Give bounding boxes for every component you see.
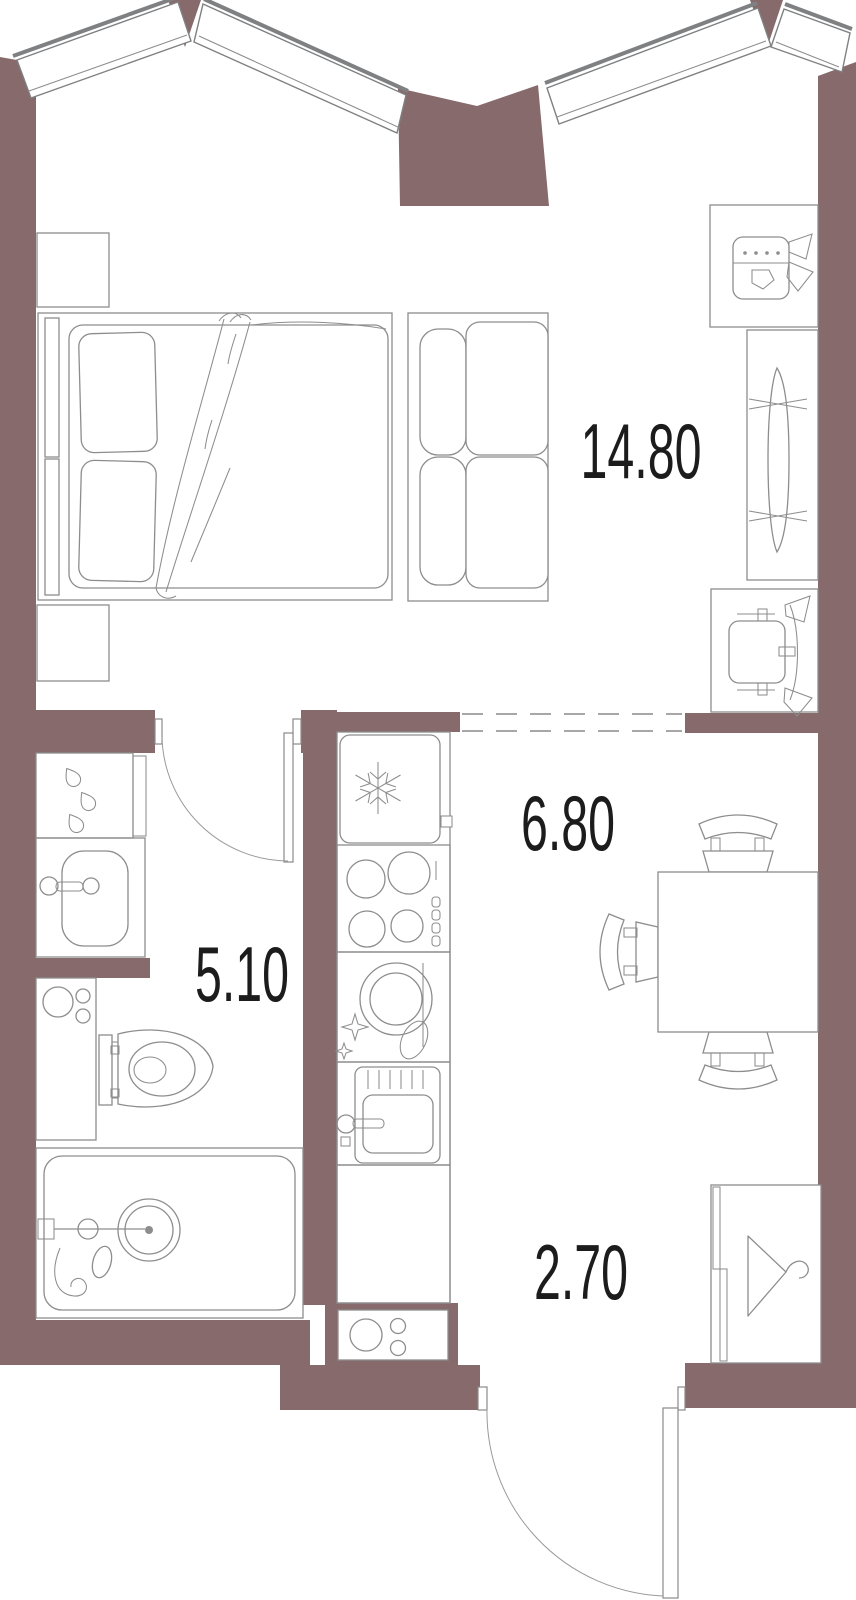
chair-back [699, 815, 777, 839]
nightstand [37, 233, 109, 307]
fridge-snowflake-icon [340, 735, 452, 843]
window-band [194, 4, 406, 133]
toilet-icon [99, 1030, 213, 1107]
double-bed-icon [38, 313, 392, 600]
chair-post [755, 838, 764, 851]
window-band [547, 8, 771, 124]
basin-faucet-spout [56, 882, 83, 891]
stove-knob [432, 936, 440, 946]
basin-drain [83, 878, 99, 894]
dishwasher [337, 952, 450, 1062]
burner [391, 910, 423, 942]
chair-icon [600, 914, 658, 990]
bathroom-top-wall-right [301, 710, 337, 753]
sink-stub-wall [36, 958, 150, 978]
door-swing-icon [487, 1409, 663, 1596]
chair-seat [636, 922, 658, 982]
kitchen-area-label: 6.80 [521, 779, 615, 867]
bathtub-outer [36, 1148, 303, 1318]
entry-bottom-wall [280, 1365, 480, 1410]
desk-with-chair [710, 205, 818, 327]
window-band [17, 2, 191, 98]
desk [710, 205, 818, 327]
sofa-back-cushion [420, 329, 466, 455]
bathroom-door [155, 719, 301, 862]
chair-icon [699, 1032, 777, 1089]
living-room-area-label: 14.80 [581, 407, 702, 495]
water-drop-icon [61, 765, 83, 789]
dining-table-icon [658, 872, 818, 1032]
bathroom-fixtures [36, 753, 303, 1318]
living-stub-wall [685, 713, 818, 733]
door-jamb [678, 1387, 685, 1410]
chair-dot [765, 251, 769, 255]
chair-post [711, 838, 720, 851]
plate-inner [370, 973, 422, 1025]
wardrobe-hanger-icon [711, 1185, 821, 1363]
chair-dot [754, 251, 758, 255]
sofa-icon [408, 313, 548, 601]
chair-seat [703, 1032, 773, 1053]
toilet-bowl-detail [134, 1057, 166, 1083]
dashed-opening [462, 714, 682, 731]
faucet-spout [353, 1119, 384, 1128]
tv-console [747, 330, 818, 580]
sink-drainer [368, 1070, 423, 1089]
bathroom-area-label: 5.10 [195, 930, 289, 1018]
washer-knob [76, 1009, 90, 1023]
water-drop-icon [64, 811, 86, 835]
washer-knob [76, 989, 90, 1003]
chair-post [624, 928, 637, 937]
tv-stand-icon [747, 330, 818, 580]
headboard-slat [45, 459, 59, 595]
window-band [771, 9, 850, 72]
utility-panel [338, 1310, 448, 1360]
washer-drum [43, 987, 73, 1017]
stove-burners-icon [337, 845, 450, 952]
fridge [340, 735, 440, 843]
burner [388, 852, 430, 894]
door-jamb [478, 1387, 487, 1410]
washing-machine-icon [36, 978, 96, 1140]
fridge-hinge [441, 816, 452, 827]
stove-knob [432, 897, 440, 907]
washbasin-icon [36, 838, 145, 957]
right-wall [818, 62, 856, 1408]
chair-seat [703, 851, 773, 872]
sofa-seat-cushion [466, 457, 548, 588]
stove-knob [432, 910, 440, 920]
door-jamb [293, 719, 301, 744]
washbasin-bowl [62, 851, 128, 946]
shower-hose [55, 1248, 87, 1296]
door-jamb [155, 719, 162, 744]
bottom-left-wall [0, 1320, 310, 1365]
water-drop-icon [76, 789, 98, 813]
stove-knob [432, 923, 440, 933]
bath-kitchen-wall [303, 753, 337, 1305]
towel-dryer-drops-icon [36, 753, 146, 838]
bathroom-top-wall [0, 710, 155, 753]
sofa-seat-cushion [466, 322, 548, 455]
half-plate [395, 1017, 434, 1063]
chair-post [624, 966, 637, 975]
shower-head [89, 1244, 115, 1280]
door-swing-icon [162, 737, 288, 861]
faucet [337, 1115, 355, 1133]
chair-dot [743, 251, 747, 255]
armchair-base [711, 589, 818, 712]
kitchen-sink-icon [337, 1062, 450, 1165]
chair-post [711, 1053, 720, 1066]
dining-set [600, 815, 818, 1089]
sparkle-icon [342, 1014, 368, 1040]
door-leaf [284, 733, 293, 862]
chair-icon [699, 815, 777, 872]
nightstand [37, 605, 109, 681]
bathtub-inner [44, 1156, 295, 1310]
top-center-pillar [398, 85, 549, 206]
towel-dryer [36, 753, 133, 838]
armchair-icon [711, 589, 818, 716]
floor-plan: 14.80 6.80 5.10 2.70 [0, 0, 856, 1600]
chair-post [755, 1053, 764, 1066]
utility-panel-icon [338, 1310, 448, 1360]
kitchen-counter-end [337, 1165, 450, 1303]
toilet-plate [112, 1042, 118, 1098]
bathtub-shower-icon [36, 1148, 303, 1318]
sofa-back-cushion [420, 457, 466, 585]
kitchen-top-wall [337, 712, 460, 732]
bed-frame [38, 313, 392, 600]
plate [360, 963, 432, 1035]
tub-wall-bracket [38, 1219, 54, 1239]
dishwasher-icon [336, 952, 450, 1063]
hallway-area-label: 2.70 [534, 1228, 628, 1316]
basin-faucet [40, 877, 58, 895]
floor-plan-page: 14.80 6.80 5.10 2.70 [0, 0, 856, 1600]
headboard-slat [45, 318, 59, 457]
entry-right-wall [685, 1363, 856, 1408]
chair-back [600, 914, 624, 990]
toilet-tank [99, 1035, 112, 1105]
burner [349, 911, 385, 947]
faucet-base [341, 1137, 350, 1146]
kitchen-units [336, 732, 452, 1303]
toilet-bowl-inner [129, 1042, 195, 1096]
towel-dryer-panel [133, 756, 146, 836]
tub-drain-center [145, 1226, 153, 1234]
entrance-door [478, 1387, 685, 1598]
sparkle-icon [336, 1043, 352, 1059]
sink-bowl [363, 1095, 433, 1153]
door-leaf [663, 1408, 678, 1598]
chair-dot [776, 251, 780, 255]
chair-back [699, 1065, 777, 1089]
burner [347, 860, 385, 898]
